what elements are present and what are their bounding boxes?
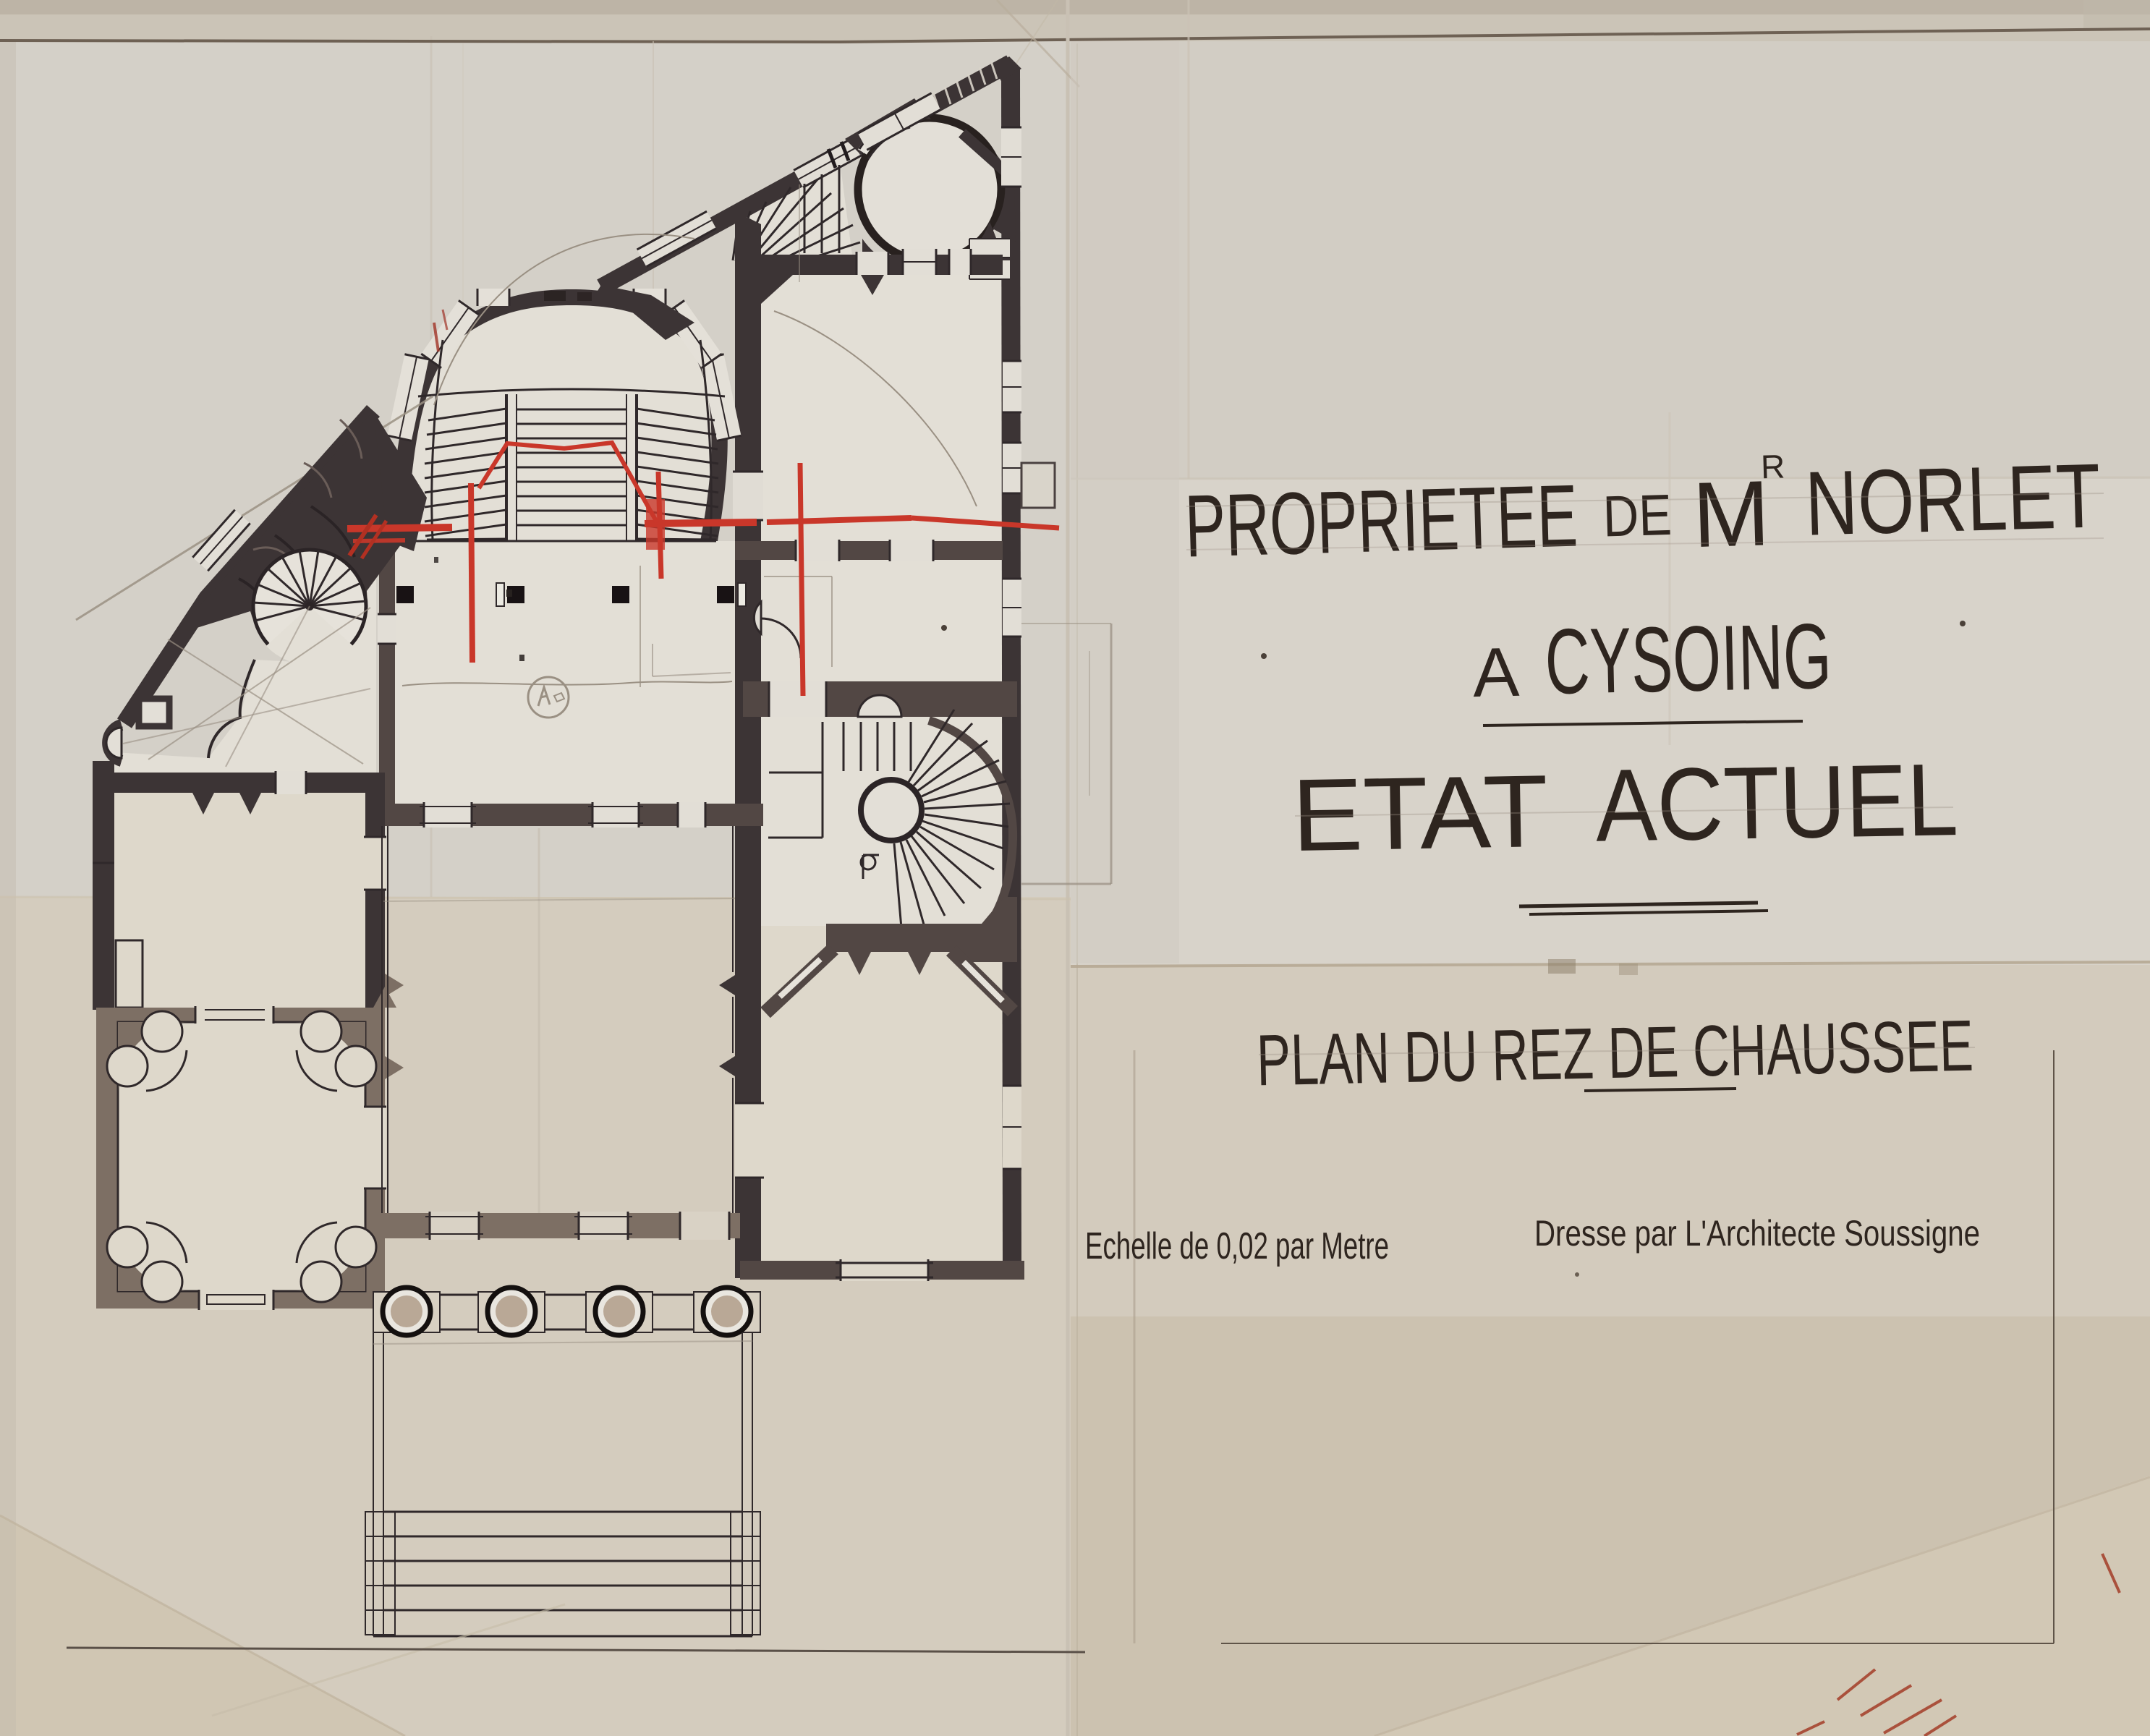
svg-text:ACTUEL: ACTUEL (1594, 742, 1959, 864)
svg-text:M: M (1691, 461, 1772, 567)
svg-text:R: R (1760, 448, 1785, 486)
svg-text:DE: DE (1602, 482, 1673, 549)
svg-text:Echelle de 0,02 par Metre: Echelle de 0,02 par Metre (1085, 1225, 1389, 1267)
svg-text:CYSOING: CYSOING (1544, 605, 1832, 714)
svg-text:Dresse par L'Architecte Soussi: Dresse par L'Architecte Soussigne (1534, 1213, 1980, 1254)
svg-text:A: A (1472, 634, 1520, 712)
svg-text:PROPRIETEE: PROPRIETEE (1184, 467, 1579, 576)
